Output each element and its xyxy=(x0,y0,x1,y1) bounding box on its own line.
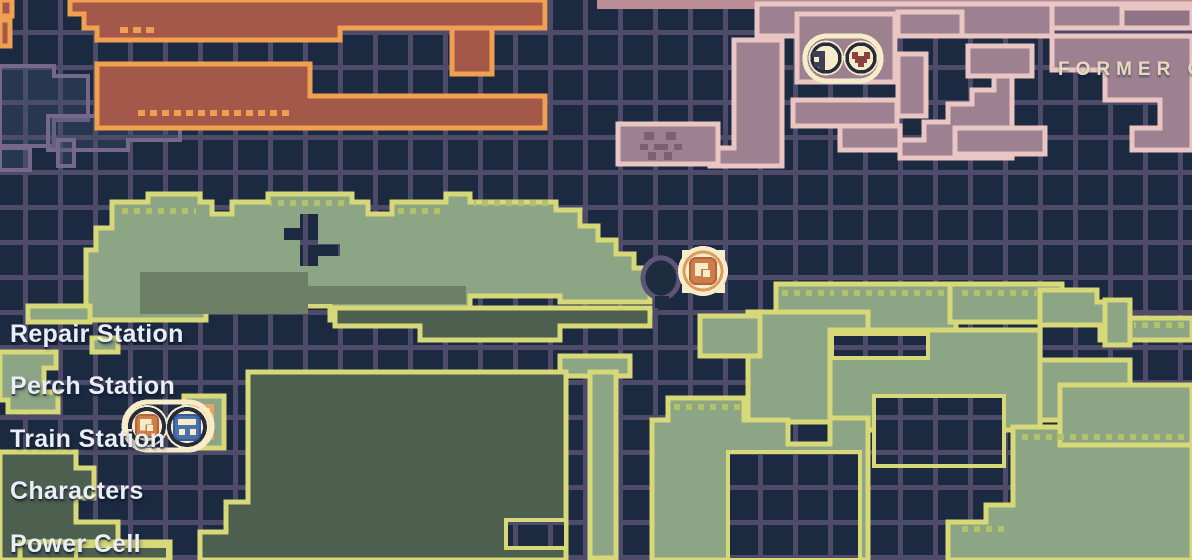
train-icon xyxy=(174,415,200,440)
character-icon xyxy=(690,258,716,284)
marker-character[interactable] xyxy=(678,246,728,296)
map-canvas[interactable] xyxy=(0,0,1192,560)
map-screen: Repair Station Perch Station Train Stati… xyxy=(0,0,1192,560)
area-label: FORMER CO xyxy=(1058,59,1192,81)
character-icon xyxy=(136,415,158,437)
